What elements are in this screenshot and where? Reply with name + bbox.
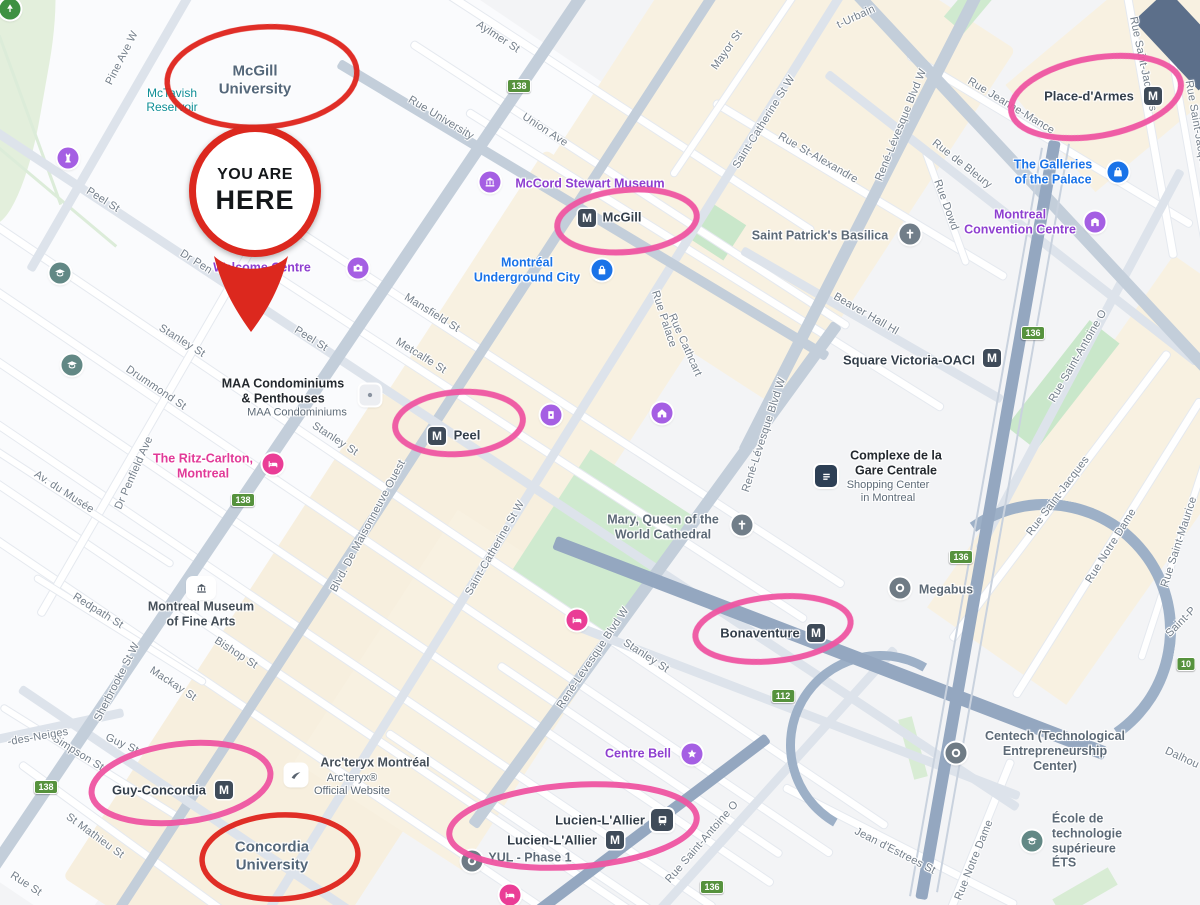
you-are-here-line2: HERE	[215, 185, 294, 216]
condo-icon[interactable]	[360, 385, 381, 406]
poi-sublabel-maa: MAA Condominiums	[247, 407, 347, 420]
fine-arts-museum-icon[interactable]	[188, 578, 214, 598]
station-label-lucien-lallier-metro: Lucien-L'Allier	[507, 832, 597, 847]
arena-icon[interactable]	[682, 744, 703, 765]
metro-icon[interactable]: M	[1144, 87, 1162, 105]
poi-label-gare-centrale: Complexe de la Gare Centrale	[850, 448, 942, 478]
poi-label-centech: Centech (Technological Entrepreneurship …	[983, 729, 1128, 773]
poi-label-underground-city: Montréal Underground City	[474, 255, 580, 285]
map-canvas[interactable]: 138 138 138 136 136 136 112 10 Pine Ave …	[0, 0, 1200, 905]
poi-label-cathedral: Mary, Queen of the World Cathedral	[607, 512, 719, 542]
shopping-center-icon[interactable]	[815, 465, 837, 487]
hotel-icon[interactable]	[567, 610, 588, 631]
school-icon[interactable]	[62, 355, 83, 376]
street-label: Dalhou	[1163, 745, 1200, 771]
home-icon[interactable]	[652, 403, 673, 424]
metro-icon[interactable]: M	[807, 624, 825, 642]
metro-icon[interactable]: M	[578, 209, 596, 227]
street-label: Rue Dowd	[931, 178, 960, 232]
route-badge-138: 138	[507, 79, 531, 93]
route-badge-112: 112	[771, 689, 795, 703]
route-badge-138: 138	[231, 493, 255, 507]
station-label-place-darmes: Place-d'Armes	[1044, 88, 1134, 103]
arcteryx-icon[interactable]	[286, 765, 307, 786]
hotel-icon[interactable]	[263, 454, 284, 475]
poi-label-mccord-museum: McCord Stewart Museum	[515, 177, 664, 192]
lock-icon[interactable]	[592, 260, 613, 281]
poi-label-megabus: Megabus	[919, 583, 973, 598]
centech-icon[interactable]	[946, 743, 967, 764]
monument-icon[interactable]	[58, 148, 79, 169]
poi-label-saint-patricks: Saint Patrick's Basilica	[752, 229, 888, 244]
poi-sublabel-gare-centrale: Shopping Center in Montreal	[847, 479, 930, 505]
hotel-icon[interactable]	[500, 885, 521, 905]
station-label-lucien-lallier-train: Lucien-L'Allier	[555, 812, 645, 827]
shop-icon[interactable]	[541, 405, 562, 426]
route-badge-10: 10	[1176, 657, 1195, 671]
metro-icon[interactable]: M	[215, 781, 233, 799]
poi-label-ets: École de technologie supérieure ÉTS	[1052, 812, 1122, 871]
metro-icon[interactable]: M	[606, 831, 624, 849]
metro-icon[interactable]: M	[983, 349, 1001, 367]
cathedral-icon[interactable]	[732, 515, 753, 536]
museum-icon[interactable]	[480, 172, 501, 193]
ets-school-icon[interactable]	[1022, 831, 1043, 852]
station-label-mcgill: McGill	[602, 209, 641, 224]
poi-label-concordia-university: Concordia University	[235, 838, 309, 873]
metro-icon[interactable]: M	[428, 427, 446, 445]
poi-label-welcome-centre: Welcome Centre	[213, 261, 311, 276]
poi-label-arcteryx: Arc'teryx Montréal	[320, 756, 429, 771]
yul-icon[interactable]	[462, 851, 483, 872]
poi-label-centre-bell: Centre Bell	[605, 747, 671, 762]
station-label-guy-concordia: Guy-Concordia	[112, 782, 206, 797]
poi-label-fine-arts-museum: Montreal Museum of Fine Arts	[148, 599, 254, 629]
shopping-bag-icon[interactable]	[1108, 162, 1129, 183]
poi-label-galleries-palace: The Galleries of the Palace	[1014, 157, 1093, 187]
you-are-here-marker: YOU ARE HERE	[189, 125, 321, 257]
church-icon[interactable]	[900, 224, 921, 245]
poi-sublabel-arcteryx: Arc'teryx® Official Website	[314, 772, 390, 798]
station-label-square-victoria: Square Victoria-OACI	[843, 352, 975, 367]
you-are-here-line1: YOU ARE	[217, 166, 293, 184]
park-area	[1052, 867, 1117, 905]
poi-label-ritz-carlton: The Ritz-Carlton, Montreal	[153, 451, 253, 481]
route-badge-136: 136	[1021, 326, 1045, 340]
station-label-bonaventure: Bonaventure	[720, 625, 799, 640]
station-label-peel: Peel	[454, 427, 481, 442]
route-badge-138: 138	[34, 780, 58, 794]
building-icon[interactable]	[1085, 212, 1106, 233]
poi-label-mctavish-reservoir: McTavish Reservoir	[146, 86, 197, 114]
school-icon[interactable]	[50, 263, 71, 284]
poi-label-maa-condos: MAA Condominiums & Penthouses	[222, 376, 344, 406]
poi-label-yul-phase1: YUL - Phase 1	[488, 851, 571, 866]
bus-station-icon[interactable]	[890, 578, 911, 599]
poi-label-mcgill-university: McGill University	[219, 62, 292, 97]
train-station-icon[interactable]	[651, 809, 673, 831]
poi-label-convention-centre: Montreal Convention Centre	[964, 207, 1076, 237]
camera-icon[interactable]	[348, 258, 369, 279]
route-badge-136: 136	[949, 550, 973, 564]
route-badge-136: 136	[700, 880, 724, 894]
